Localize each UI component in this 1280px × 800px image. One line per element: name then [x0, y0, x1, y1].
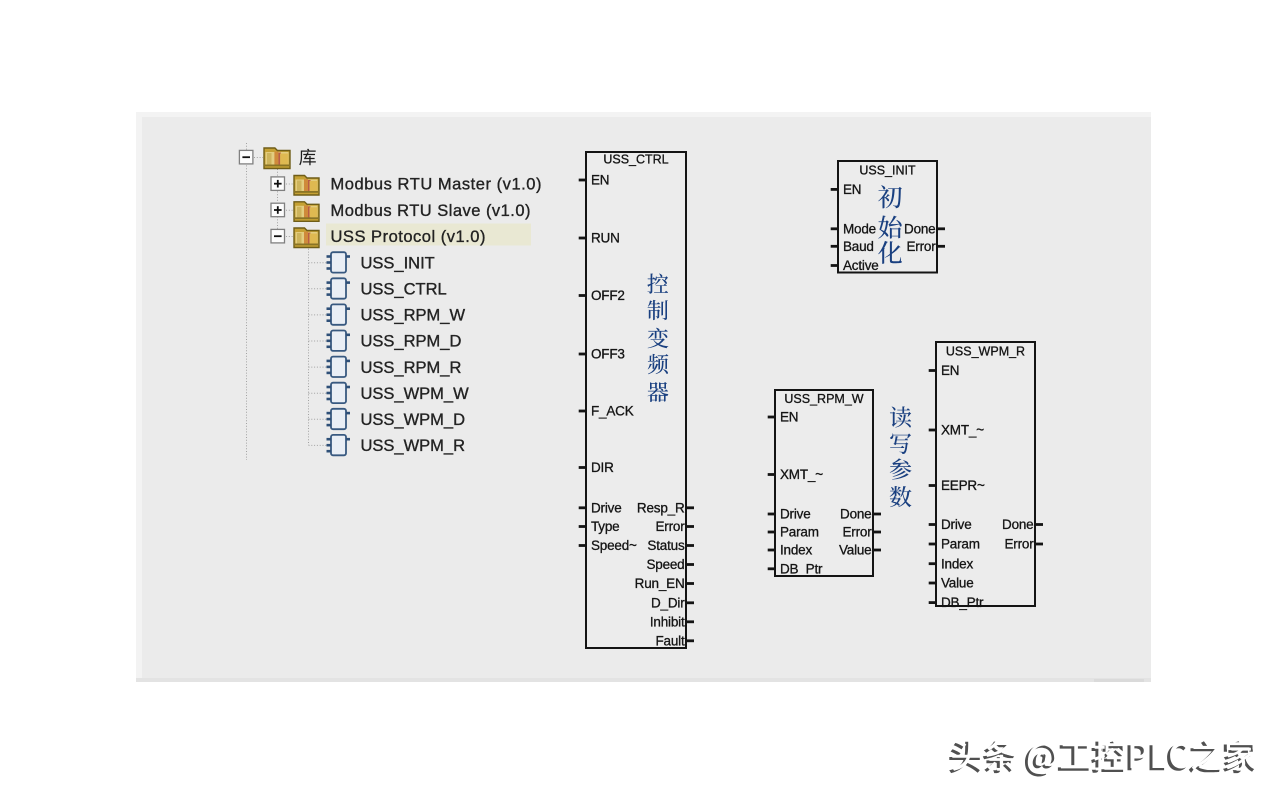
svg-text:Modbus RTU Slave (v1.0): Modbus RTU Slave (v1.0): [331, 202, 531, 220]
svg-text:USS_CTRL: USS_CTRL: [603, 153, 668, 167]
svg-text:EN: EN: [843, 182, 861, 197]
svg-text:Value: Value: [839, 543, 872, 558]
svg-text:F_ACK: F_ACK: [591, 404, 634, 419]
svg-text:OFF3: OFF3: [591, 347, 625, 362]
svg-text:USS_WPM_D: USS_WPM_D: [361, 411, 466, 429]
svg-text:USS_RPM_W: USS_RPM_W: [784, 392, 863, 406]
svg-text:Index: Index: [941, 556, 973, 571]
svg-text:XMT_~: XMT_~: [941, 423, 984, 438]
svg-text:Type: Type: [591, 519, 619, 534]
svg-text:USS_RPM_W: USS_RPM_W: [361, 307, 466, 325]
svg-text:DB_Ptr: DB_Ptr: [780, 561, 823, 576]
svg-text:EN: EN: [591, 173, 609, 188]
svg-text:DIR: DIR: [591, 460, 614, 475]
svg-text:D_Dir: D_Dir: [651, 595, 685, 610]
svg-text:USS_WPM_R: USS_WPM_R: [361, 437, 466, 455]
svg-text:Baud: Baud: [843, 239, 874, 254]
svg-text:Error: Error: [1005, 537, 1035, 552]
svg-text:Error: Error: [907, 239, 937, 254]
svg-text:USS_INIT: USS_INIT: [361, 254, 435, 272]
svg-text:DB_Ptr: DB_Ptr: [941, 595, 984, 610]
svg-text:Run_EN: Run_EN: [635, 576, 685, 591]
svg-text:USS_RPM_R: USS_RPM_R: [361, 359, 462, 377]
svg-text:Drive: Drive: [591, 500, 622, 515]
svg-text:Speed: Speed: [646, 557, 684, 572]
svg-text:XMT_~: XMT_~: [780, 467, 823, 482]
svg-text:Drive: Drive: [941, 517, 972, 532]
svg-text:Index: Index: [780, 543, 812, 558]
svg-text:Speed~: Speed~: [591, 538, 637, 553]
svg-text:Done: Done: [840, 507, 871, 522]
svg-text:Error: Error: [843, 525, 873, 540]
svg-text:Mode: Mode: [843, 221, 876, 236]
svg-text:Done: Done: [904, 221, 935, 236]
svg-text:USS_RPM_D: USS_RPM_D: [361, 333, 462, 351]
svg-text:USS_WPM_W: USS_WPM_W: [361, 385, 470, 403]
svg-text:Modbus RTU Master (v1.0): Modbus RTU Master (v1.0): [331, 176, 542, 194]
svg-text:Inhibit: Inhibit: [650, 614, 685, 629]
svg-text:EN: EN: [941, 363, 959, 378]
svg-text:Param: Param: [941, 537, 980, 552]
svg-text:USS Protocol (v1.0): USS Protocol (v1.0): [331, 228, 486, 246]
svg-text:Drive: Drive: [780, 507, 811, 522]
svg-text:Value: Value: [941, 576, 974, 591]
svg-text:Error: Error: [656, 519, 686, 534]
svg-text:Active: Active: [843, 258, 879, 273]
svg-text:Done: Done: [1002, 517, 1033, 532]
svg-text:OFF2: OFF2: [591, 288, 625, 303]
svg-text:USS_INIT: USS_INIT: [859, 164, 916, 178]
svg-text:Resp_R: Resp_R: [637, 500, 685, 515]
svg-text:RUN: RUN: [591, 231, 620, 246]
svg-text:EN: EN: [780, 410, 798, 425]
svg-text:EEPR~: EEPR~: [941, 478, 985, 493]
svg-text:USS_CTRL: USS_CTRL: [361, 281, 447, 299]
svg-text:Param: Param: [780, 525, 819, 540]
svg-text:Fault: Fault: [655, 633, 684, 648]
svg-text:Status: Status: [647, 538, 685, 553]
svg-text:USS_WPM_R: USS_WPM_R: [946, 345, 1025, 359]
